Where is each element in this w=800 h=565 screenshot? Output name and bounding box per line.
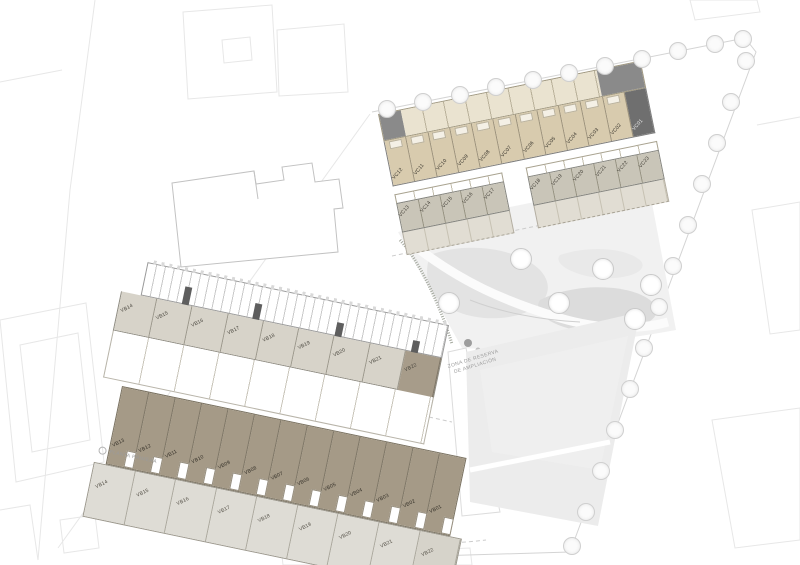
unit-label: VB18 xyxy=(257,513,271,524)
tree-icon xyxy=(722,93,740,111)
unit-label: VC07 xyxy=(500,145,513,159)
unit-label: VC19 xyxy=(551,173,564,187)
unit-label: VB15 xyxy=(135,487,149,498)
unit-label: VC22 xyxy=(616,160,629,174)
unit-label: VB17 xyxy=(226,325,240,336)
unit-cell: VC23 xyxy=(637,151,663,183)
unit-label: VC17 xyxy=(483,187,496,201)
unit-label: VC14 xyxy=(419,200,432,214)
tree-icon xyxy=(706,35,724,53)
unit-label: VC05 xyxy=(544,136,557,150)
unit-label: VB10 xyxy=(191,454,205,465)
tree-icon xyxy=(414,93,432,111)
unit-label: VB19 xyxy=(297,340,311,351)
tree-icon xyxy=(438,292,460,314)
tree-icon xyxy=(592,462,610,480)
tree-icon xyxy=(708,134,726,152)
unit-label: VB15 xyxy=(155,310,169,321)
unit-label: VB13 xyxy=(111,438,125,449)
unit-label: VB09 xyxy=(217,460,231,471)
unit-label: VB17 xyxy=(217,504,231,515)
tree-icon xyxy=(679,216,697,234)
unit-label: VC18 xyxy=(529,178,542,192)
unit-label: VC10 xyxy=(435,158,448,172)
unit-label: VC23 xyxy=(638,155,651,169)
unit-label: VC02 xyxy=(609,122,622,136)
unit-label: VB22 xyxy=(420,547,434,558)
unit-label: VB11 xyxy=(164,449,178,460)
unit-label: VB22 xyxy=(403,362,417,373)
north-symbol-icon xyxy=(98,446,107,455)
unit-label: VC01 xyxy=(631,118,644,132)
unit-label: VB14 xyxy=(120,303,134,314)
unit-label: VC16 xyxy=(462,191,475,205)
tree-icon xyxy=(669,42,687,60)
unit-label: VB20 xyxy=(332,347,346,358)
unit-label: VC15 xyxy=(440,196,453,210)
tree-icon xyxy=(510,248,532,270)
unit-label: VB20 xyxy=(339,530,353,541)
unit-label: VC11 xyxy=(413,163,426,177)
unit-label: VB14 xyxy=(95,479,109,490)
unit-label: VC09 xyxy=(457,153,470,167)
unit-label: VC13 xyxy=(398,204,411,218)
tree-icon xyxy=(693,175,711,193)
tree-icon xyxy=(633,50,651,68)
unit-label: VB07 xyxy=(270,471,284,482)
tree-icon xyxy=(378,100,396,118)
unit-label: VB02 xyxy=(402,498,416,509)
tree-icon xyxy=(621,380,639,398)
tree-icon xyxy=(560,64,578,82)
unit-label: VB05 xyxy=(323,482,337,493)
tree-icon xyxy=(563,537,581,555)
unit-label: VC04 xyxy=(566,131,579,145)
tree-icon xyxy=(596,57,614,75)
unit-label: VB01 xyxy=(429,504,443,515)
unit-label: VC20 xyxy=(572,169,585,183)
existing-building-outline xyxy=(172,163,343,267)
tree-icon xyxy=(734,30,752,48)
tree-icon xyxy=(635,339,653,357)
unit-label: VB18 xyxy=(262,333,276,344)
unit-label: VC03 xyxy=(587,127,600,141)
unit-label: VB12 xyxy=(138,443,152,454)
unit-label: VB19 xyxy=(298,521,312,532)
site-plan-canvas: VC12VC11VC10VC09VC08VC07VC06VC05VC04VC03… xyxy=(0,0,800,565)
tree-icon xyxy=(624,308,646,330)
unit-label: VB08 xyxy=(244,465,258,476)
tree-icon xyxy=(577,503,595,521)
tree-icon xyxy=(524,71,542,89)
unit-label: VB21 xyxy=(379,538,393,549)
unit-label: VB04 xyxy=(349,487,363,498)
tree-icon xyxy=(737,52,755,70)
tree-icon xyxy=(650,298,668,316)
unit-label: VB03 xyxy=(376,493,390,504)
tree-icon xyxy=(487,78,505,96)
unit-label: VB16 xyxy=(191,318,205,329)
unit-cell: VC17 xyxy=(483,182,509,214)
unit-label: VB21 xyxy=(368,355,382,366)
unit-label: VB16 xyxy=(176,496,190,507)
tree-icon xyxy=(606,421,624,439)
unit-label: VC06 xyxy=(522,140,535,154)
tree-icon xyxy=(664,257,682,275)
unit-label: VC12 xyxy=(391,167,404,181)
tree-icon xyxy=(592,258,614,280)
unit-label: VB06 xyxy=(296,476,310,487)
unit-label: VC08 xyxy=(478,149,491,163)
tree-icon xyxy=(548,292,570,314)
tree-icon xyxy=(451,86,469,104)
tree-icon xyxy=(640,274,662,296)
unit-label: VC21 xyxy=(594,164,607,178)
